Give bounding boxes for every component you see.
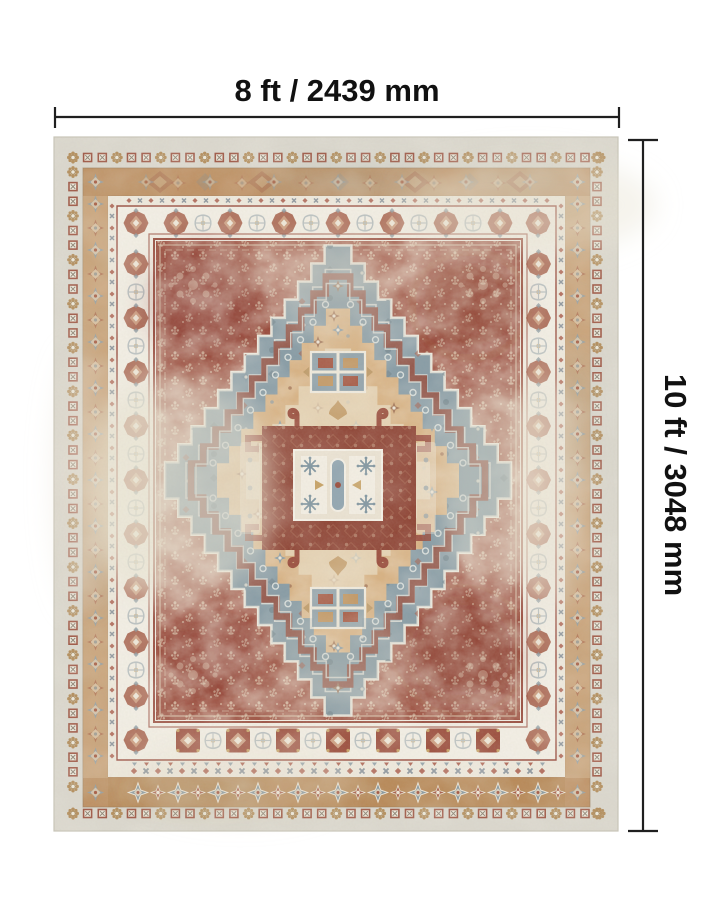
svg-text:8 ft / 2439 mm: 8 ft / 2439 mm [234,73,439,108]
svg-text:10 ft / 3048 mm: 10 ft / 3048 mm [658,374,693,596]
